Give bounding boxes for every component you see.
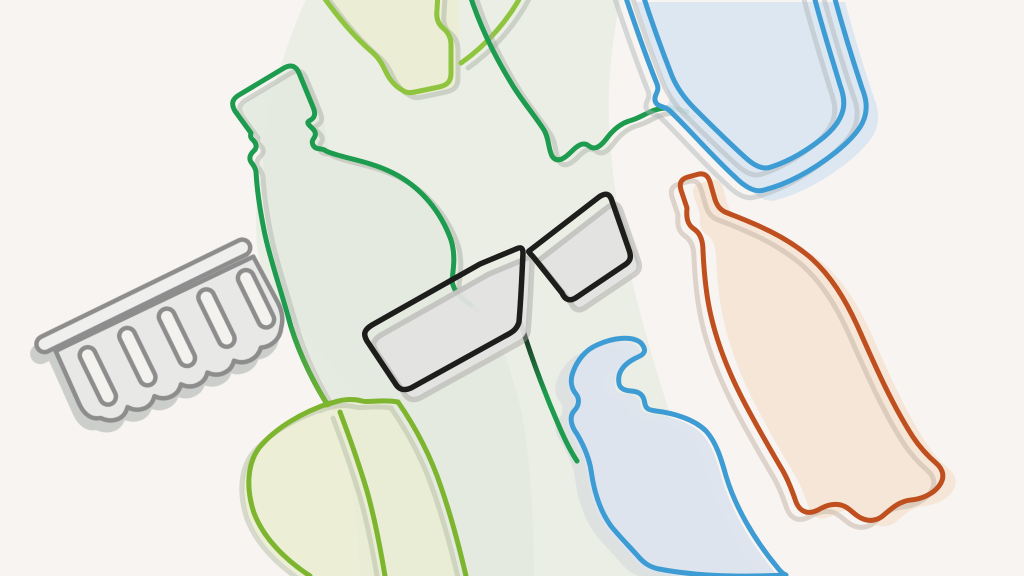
line-art-illustration xyxy=(0,0,1024,576)
illustration-canvas xyxy=(0,0,1024,576)
